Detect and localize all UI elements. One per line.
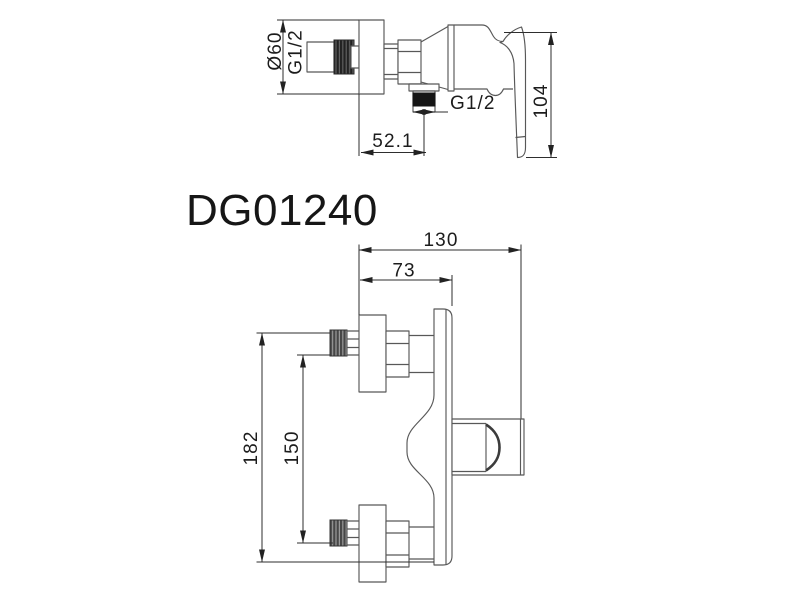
- dim-ports-spacing: 150: [282, 355, 333, 543]
- wall-plate: [359, 20, 384, 94]
- ports-spacing-label: 150: [282, 430, 303, 465]
- top-inlet-thread: [330, 330, 347, 356]
- valve-body-top-edge: [454, 25, 503, 42]
- body-cone: [421, 27, 448, 90]
- neck: [384, 44, 398, 79]
- body-depth-label: 73: [392, 261, 415, 282]
- plate-diameter-label: Ø60: [265, 31, 286, 70]
- overall-height-label: 182: [241, 430, 262, 465]
- wall-to-outlet-label: 52.1: [372, 131, 413, 152]
- bottom-inlet-thread: [330, 520, 347, 546]
- bottom-flange: [359, 505, 386, 582]
- outlet-thread-band: [413, 93, 435, 106]
- faucet-technical-drawing: Ø60 G1/2 104 52.1 G1/2 DG01240: [0, 0, 800, 600]
- hex-nut: [398, 40, 421, 84]
- bottom-bridge-lines: [409, 527, 434, 559]
- top-bridge-lines: [409, 336, 434, 373]
- dim-body-depth: 73: [360, 261, 452, 307]
- bottom-inlet-hex: [347, 521, 360, 545]
- outlet-thread-label: G1/2: [450, 93, 496, 114]
- top-inlet-hex: [347, 331, 360, 355]
- outlet-collar: [409, 84, 439, 91]
- overall-width-label: 130: [423, 230, 458, 251]
- technical-drawing-page: Ø60 G1/2 104 52.1 G1/2 DG01240: [0, 0, 800, 600]
- cap-rim: [448, 25, 454, 91]
- top-connector: [386, 331, 409, 377]
- side-view: Ø60 G1/2 104 52.1 G1/2: [265, 20, 557, 158]
- inlet-thread-label: G1/2: [286, 29, 307, 75]
- bottom-connector: [386, 521, 409, 567]
- front-view: 130 73 182 150: [241, 230, 524, 582]
- lever-handle: [500, 27, 526, 158]
- inlet-pipe: [307, 42, 334, 72]
- inlet-collar: [351, 46, 359, 68]
- model-number: DG01240: [186, 186, 378, 235]
- top-flange: [359, 315, 386, 392]
- height-label: 104: [531, 83, 552, 118]
